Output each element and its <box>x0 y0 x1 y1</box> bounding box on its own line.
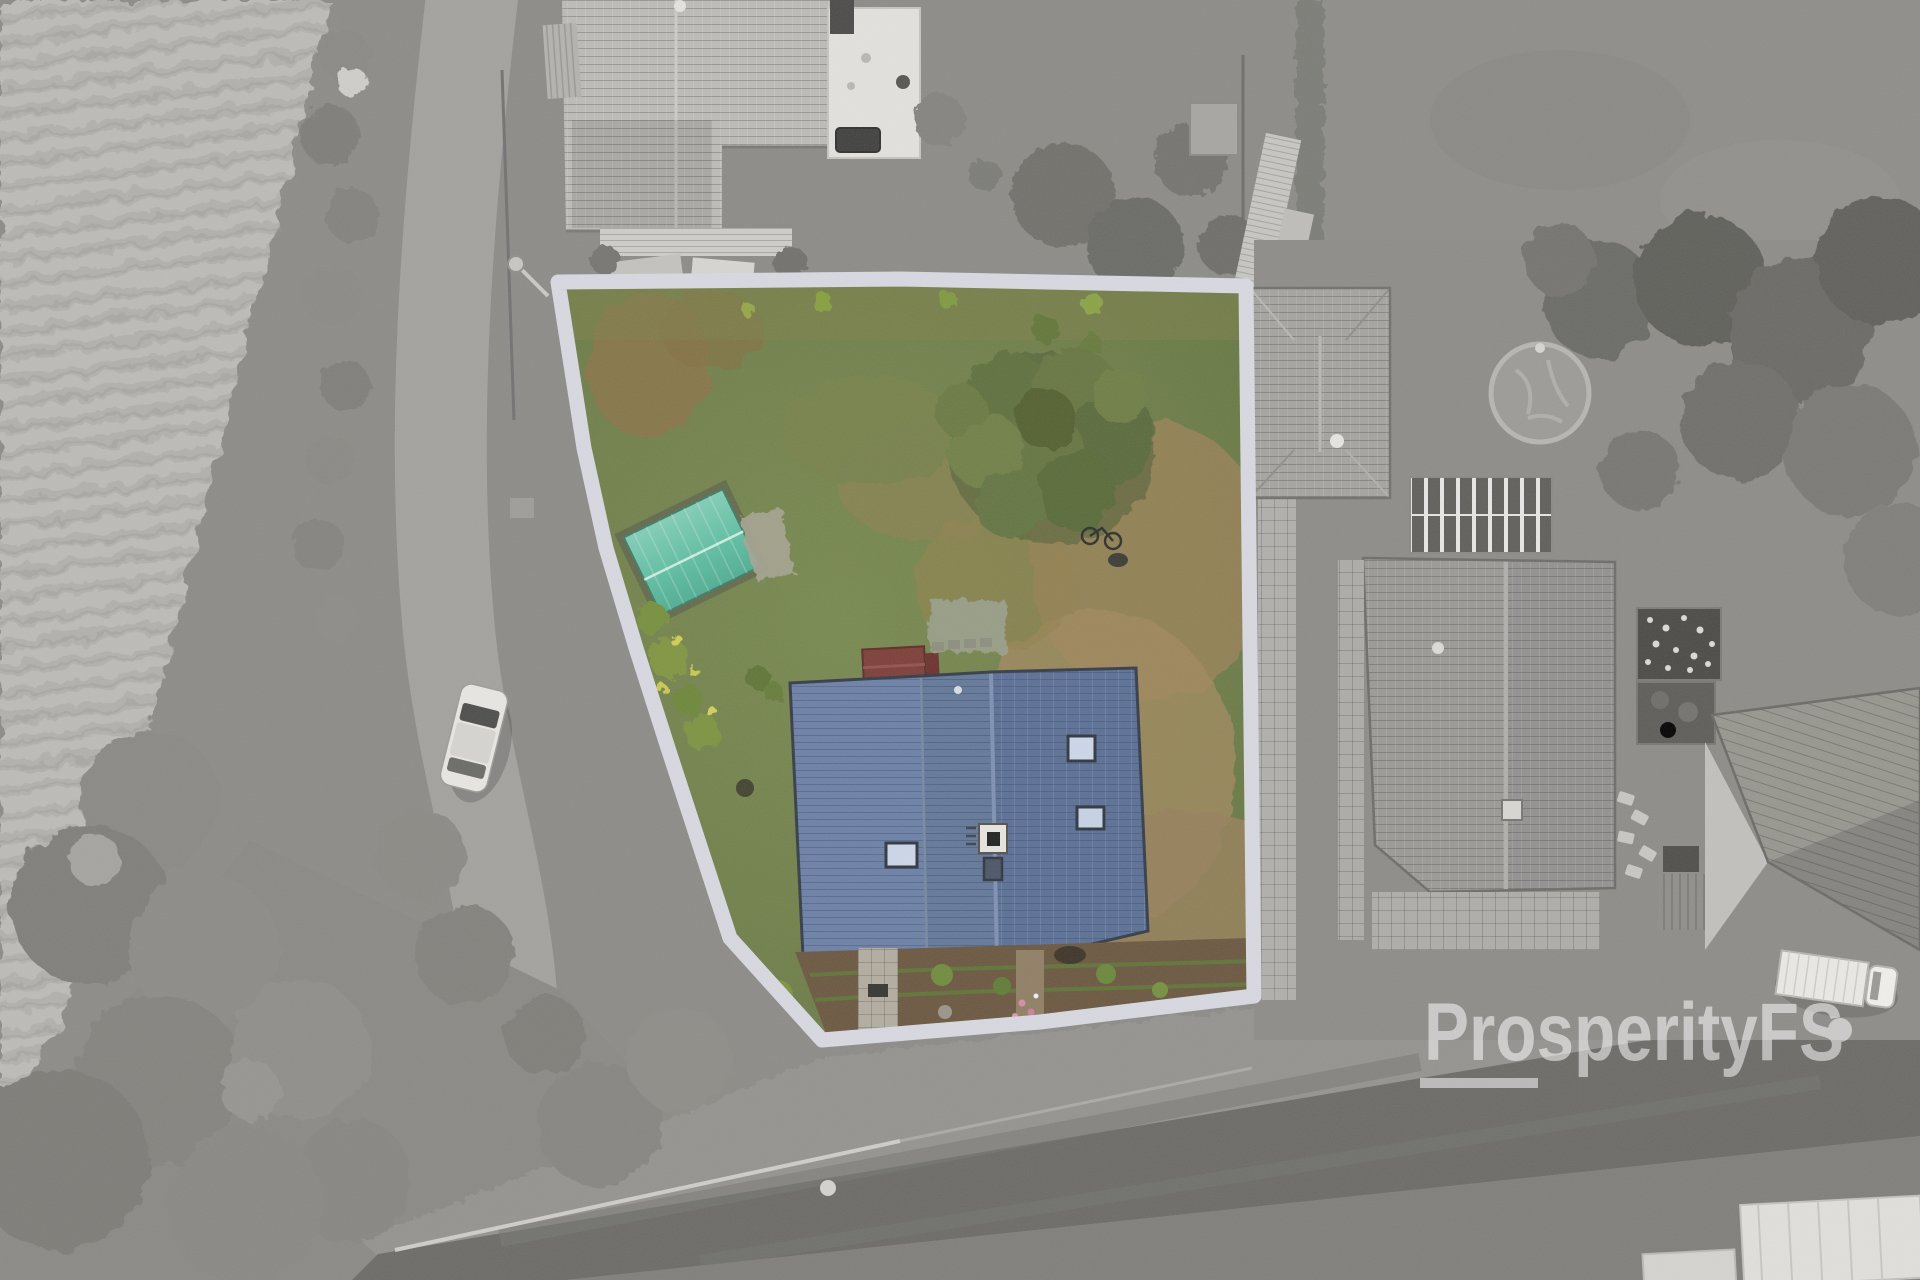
watermark: ProsperityFS <box>1420 987 1852 1088</box>
watermark-dot <box>1828 1018 1852 1042</box>
aerial-property-photo: ProsperityFS <box>0 0 1920 1280</box>
scene-canvas: ProsperityFS <box>0 0 1920 1280</box>
watermark-underline <box>1420 1078 1538 1088</box>
watermark-text: ProsperityFS <box>1424 987 1844 1078</box>
photo-grain <box>0 0 1920 1280</box>
